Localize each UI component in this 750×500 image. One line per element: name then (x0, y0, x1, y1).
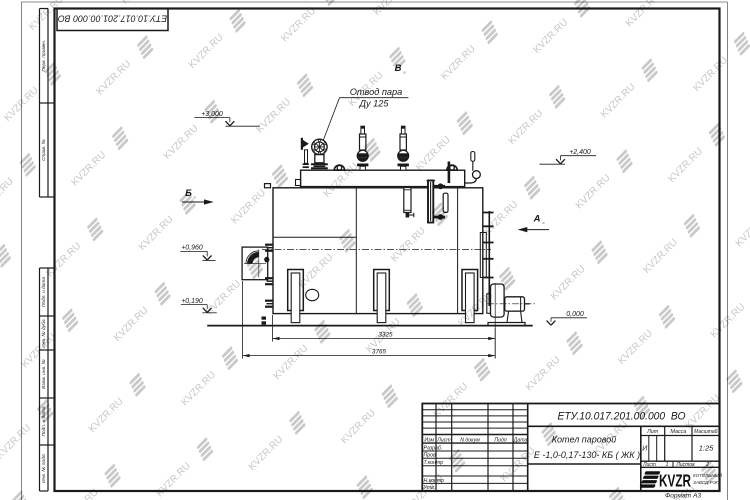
svg-text:А: А (533, 214, 541, 225)
svg-text:Масштаб: Масштаб (694, 429, 718, 435)
svg-text:Дата: Дата (513, 438, 528, 444)
svg-text:Перв. примен.: Перв. примен. (41, 40, 47, 72)
svg-text:1: 1 (666, 462, 669, 468)
svg-text:0,000: 0,000 (566, 311, 584, 318)
svg-text:Изм: Изм (424, 438, 434, 444)
svg-text:ЗАВОД РЭП: ЗАВОД РЭП (693, 480, 720, 485)
svg-text:Т.контр: Т.контр (424, 460, 444, 466)
svg-text:Разраб.: Разраб. (424, 446, 443, 452)
svg-text:+0,960: +0,960 (181, 245, 203, 252)
svg-text:Подп: Подп (494, 438, 507, 444)
svg-text:Лист: Лист (436, 438, 451, 444)
svg-text:Справ. №: Справ. № (41, 139, 47, 161)
svg-text:1:25: 1:25 (699, 444, 714, 453)
svg-text:+0,190: +0,190 (181, 298, 203, 305)
svg-text:Листов: Листов (675, 462, 695, 468)
svg-text:Инв. № подл.: Инв. № подл. (41, 453, 47, 483)
svg-text:+2,400: +2,400 (569, 149, 591, 156)
svg-text:Взам. инв. №: Взам. инв. № (41, 359, 47, 389)
svg-text:Масса: Масса (670, 429, 686, 435)
svg-text:N докум: N докум (460, 438, 480, 444)
svg-text:Лист: Лист (642, 462, 656, 468)
svg-text:Пров.: Пров. (424, 453, 438, 459)
svg-text:Лит: Лит (646, 429, 659, 435)
svg-text:ЕТУ.10.017.201.00.000 ВО: ЕТУ.10.017.201.00.000 ВО (58, 14, 167, 24)
svg-text:Е -1,0-0,17-130- КБ ( ЖК ): Е -1,0-0,17-130- КБ ( ЖК ) (534, 450, 640, 460)
svg-text:Подп. и дата: Подп. и дата (41, 277, 47, 307)
